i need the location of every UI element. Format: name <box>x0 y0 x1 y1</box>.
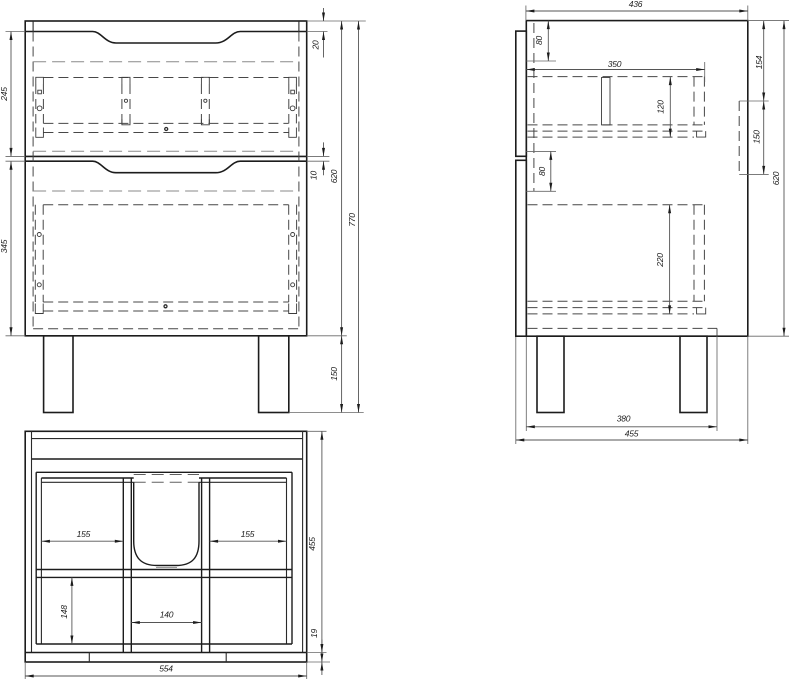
svg-text:80: 80 <box>537 167 547 177</box>
svg-text:150: 150 <box>751 130 761 144</box>
svg-text:345: 345 <box>0 239 9 253</box>
svg-text:19: 19 <box>309 629 319 639</box>
svg-text:770: 770 <box>347 213 357 227</box>
svg-text:154: 154 <box>754 55 764 69</box>
svg-text:620: 620 <box>329 169 339 183</box>
svg-text:80: 80 <box>534 36 544 46</box>
svg-text:150: 150 <box>329 367 339 381</box>
svg-text:220: 220 <box>655 253 665 268</box>
svg-text:350: 350 <box>608 59 622 69</box>
svg-text:436: 436 <box>629 0 643 9</box>
svg-text:20: 20 <box>311 40 321 51</box>
svg-text:380: 380 <box>617 413 631 423</box>
svg-text:455: 455 <box>625 428 639 438</box>
svg-text:120: 120 <box>655 100 665 114</box>
svg-text:10: 10 <box>309 171 319 181</box>
svg-text:155: 155 <box>241 529 255 539</box>
svg-text:245: 245 <box>0 87 9 102</box>
svg-text:155: 155 <box>77 529 91 539</box>
svg-text:455: 455 <box>307 537 317 551</box>
svg-text:148: 148 <box>59 605 69 619</box>
svg-text:620: 620 <box>771 171 781 185</box>
svg-text:554: 554 <box>159 663 173 673</box>
svg-text:140: 140 <box>160 610 174 620</box>
